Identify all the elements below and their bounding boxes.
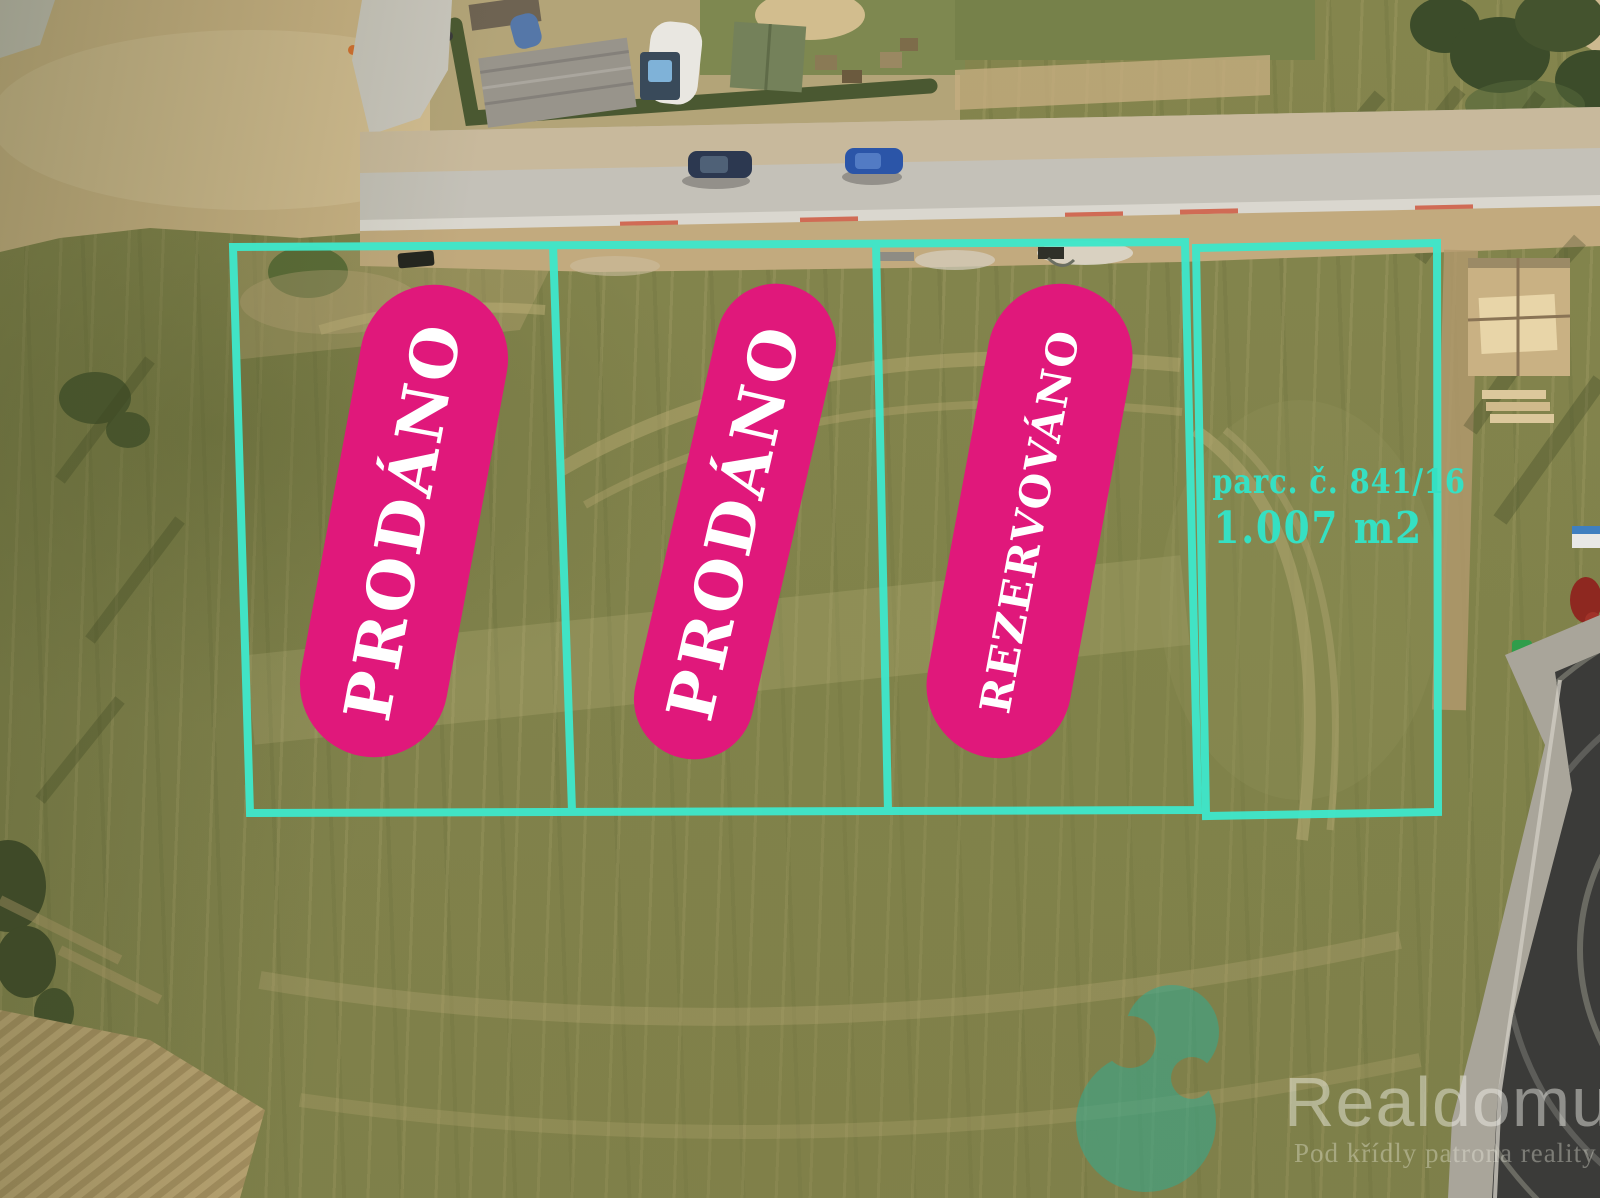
parcel-boundaries: [0, 0, 1600, 1198]
parcel-area: 1.007 m2: [1213, 503, 1422, 556]
parcel-3-status-label: REZERVOVÁNO: [970, 325, 1089, 717]
watermark-tagline: Pod křídly patrona reality: [1294, 1138, 1597, 1169]
watermark-brand: Realdomus: [1284, 1062, 1600, 1142]
parcel-4-label: parc. č. 841/16 1.007 m2: [1190, 462, 1446, 556]
parcel-divider-2: [876, 243, 888, 811]
parcel-number: parc. č. 841/16: [1212, 462, 1465, 503]
parcel-divider-1: [553, 244, 572, 811]
aerial-photo: PRODÁNO PRODÁNO REZERVOVÁNO parc. č. 841…: [0, 0, 1600, 1198]
realdomus-logo-icon: [1072, 980, 1232, 1198]
